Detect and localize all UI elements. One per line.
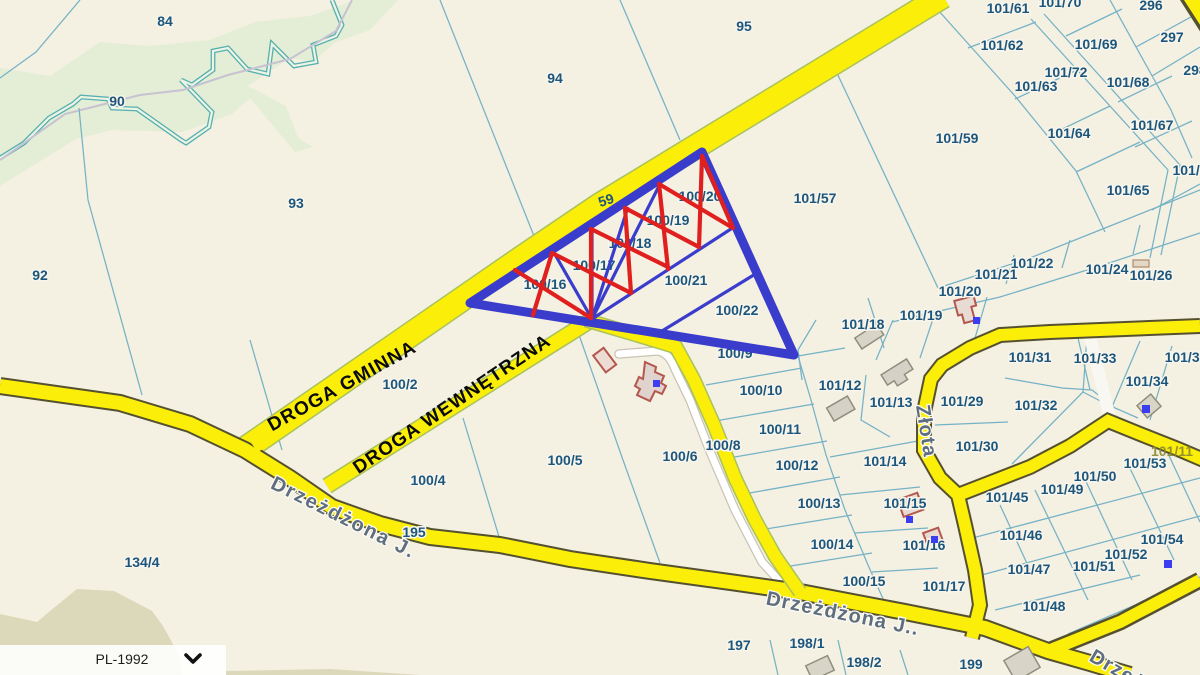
svg-text:101/22: 101/22 (1011, 255, 1054, 271)
svg-text:298: 298 (1183, 62, 1200, 78)
svg-text:101/30: 101/30 (956, 438, 999, 454)
svg-text:101/51: 101/51 (1073, 558, 1116, 574)
svg-text:101/61: 101/61 (987, 0, 1030, 16)
svg-text:101/12: 101/12 (819, 377, 862, 393)
svg-text:101/18: 101/18 (842, 316, 885, 332)
svg-text:90: 90 (109, 93, 125, 109)
svg-text:101/65: 101/65 (1107, 182, 1150, 198)
svg-text:101/63: 101/63 (1015, 78, 1058, 94)
svg-text:100/4: 100/4 (410, 472, 445, 488)
svg-text:101/20: 101/20 (939, 283, 982, 299)
svg-text:95: 95 (736, 18, 752, 34)
svg-text:101/46: 101/46 (1000, 527, 1043, 543)
svg-text:101/54: 101/54 (1141, 531, 1184, 547)
svg-text:101/29: 101/29 (941, 393, 984, 409)
svg-text:296: 296 (1139, 0, 1163, 13)
svg-text:101/70: 101/70 (1039, 0, 1082, 10)
svg-text:101/67: 101/67 (1131, 117, 1174, 133)
svg-text:101/45: 101/45 (986, 489, 1029, 505)
svg-text:93: 93 (288, 195, 304, 211)
svg-text:100/12: 100/12 (776, 457, 819, 473)
svg-text:92: 92 (32, 267, 48, 283)
svg-text:134/4: 134/4 (124, 554, 159, 570)
svg-text:101/68: 101/68 (1107, 74, 1150, 90)
svg-text:100/5: 100/5 (547, 452, 582, 468)
svg-text:101/64: 101/64 (1048, 125, 1091, 141)
svg-text:101/15: 101/15 (884, 495, 927, 511)
svg-text:101/33: 101/33 (1074, 350, 1117, 366)
svg-text:101/49: 101/49 (1041, 481, 1084, 497)
svg-text:101/72: 101/72 (1045, 64, 1088, 80)
svg-text:101/11: 101/11 (1151, 443, 1193, 459)
svg-text:101/17: 101/17 (923, 578, 966, 594)
svg-text:100/22: 100/22 (716, 302, 759, 318)
svg-text:100/13: 100/13 (798, 495, 841, 511)
svg-text:101/57: 101/57 (794, 190, 837, 206)
svg-text:100/2: 100/2 (382, 376, 417, 392)
svg-text:100/11: 100/11 (759, 421, 801, 437)
svg-text:94: 94 (547, 70, 563, 86)
svg-text:101/14: 101/14 (864, 453, 907, 469)
svg-text:100/15: 100/15 (843, 573, 886, 589)
svg-text:101/24: 101/24 (1086, 261, 1129, 277)
svg-text:100/8: 100/8 (705, 437, 740, 453)
svg-text:84: 84 (157, 13, 173, 29)
svg-text:100/21: 100/21 (665, 272, 708, 288)
svg-text:101/35: 101/35 (1165, 349, 1200, 365)
svg-text:101/13: 101/13 (870, 394, 913, 410)
svg-text:101/47: 101/47 (1008, 561, 1051, 577)
svg-text:199: 199 (959, 656, 983, 672)
svg-text:101/32: 101/32 (1015, 397, 1058, 413)
svg-text:101/26: 101/26 (1130, 267, 1173, 283)
svg-text:297: 297 (1160, 29, 1184, 45)
svg-text:101/16: 101/16 (903, 537, 946, 553)
svg-text:198/2: 198/2 (846, 654, 881, 670)
svg-text:198/1: 198/1 (789, 635, 824, 651)
svg-text:101/6: 101/6 (1172, 162, 1200, 178)
svg-text:197: 197 (727, 637, 751, 653)
svg-text:PL-1992: PL-1992 (96, 651, 149, 667)
svg-text:100/19: 100/19 (647, 212, 690, 228)
svg-text:101/31: 101/31 (1009, 349, 1052, 365)
svg-text:101/62: 101/62 (981, 37, 1024, 53)
svg-text:100/10: 100/10 (740, 382, 783, 398)
svg-text:101/69: 101/69 (1075, 36, 1118, 52)
svg-text:101/34: 101/34 (1126, 373, 1169, 389)
svg-text:101/48: 101/48 (1023, 598, 1066, 614)
svg-text:101/59: 101/59 (936, 130, 979, 146)
svg-text:100/14: 100/14 (811, 536, 854, 552)
svg-text:100/6: 100/6 (662, 448, 697, 464)
svg-text:101/19: 101/19 (900, 307, 943, 323)
